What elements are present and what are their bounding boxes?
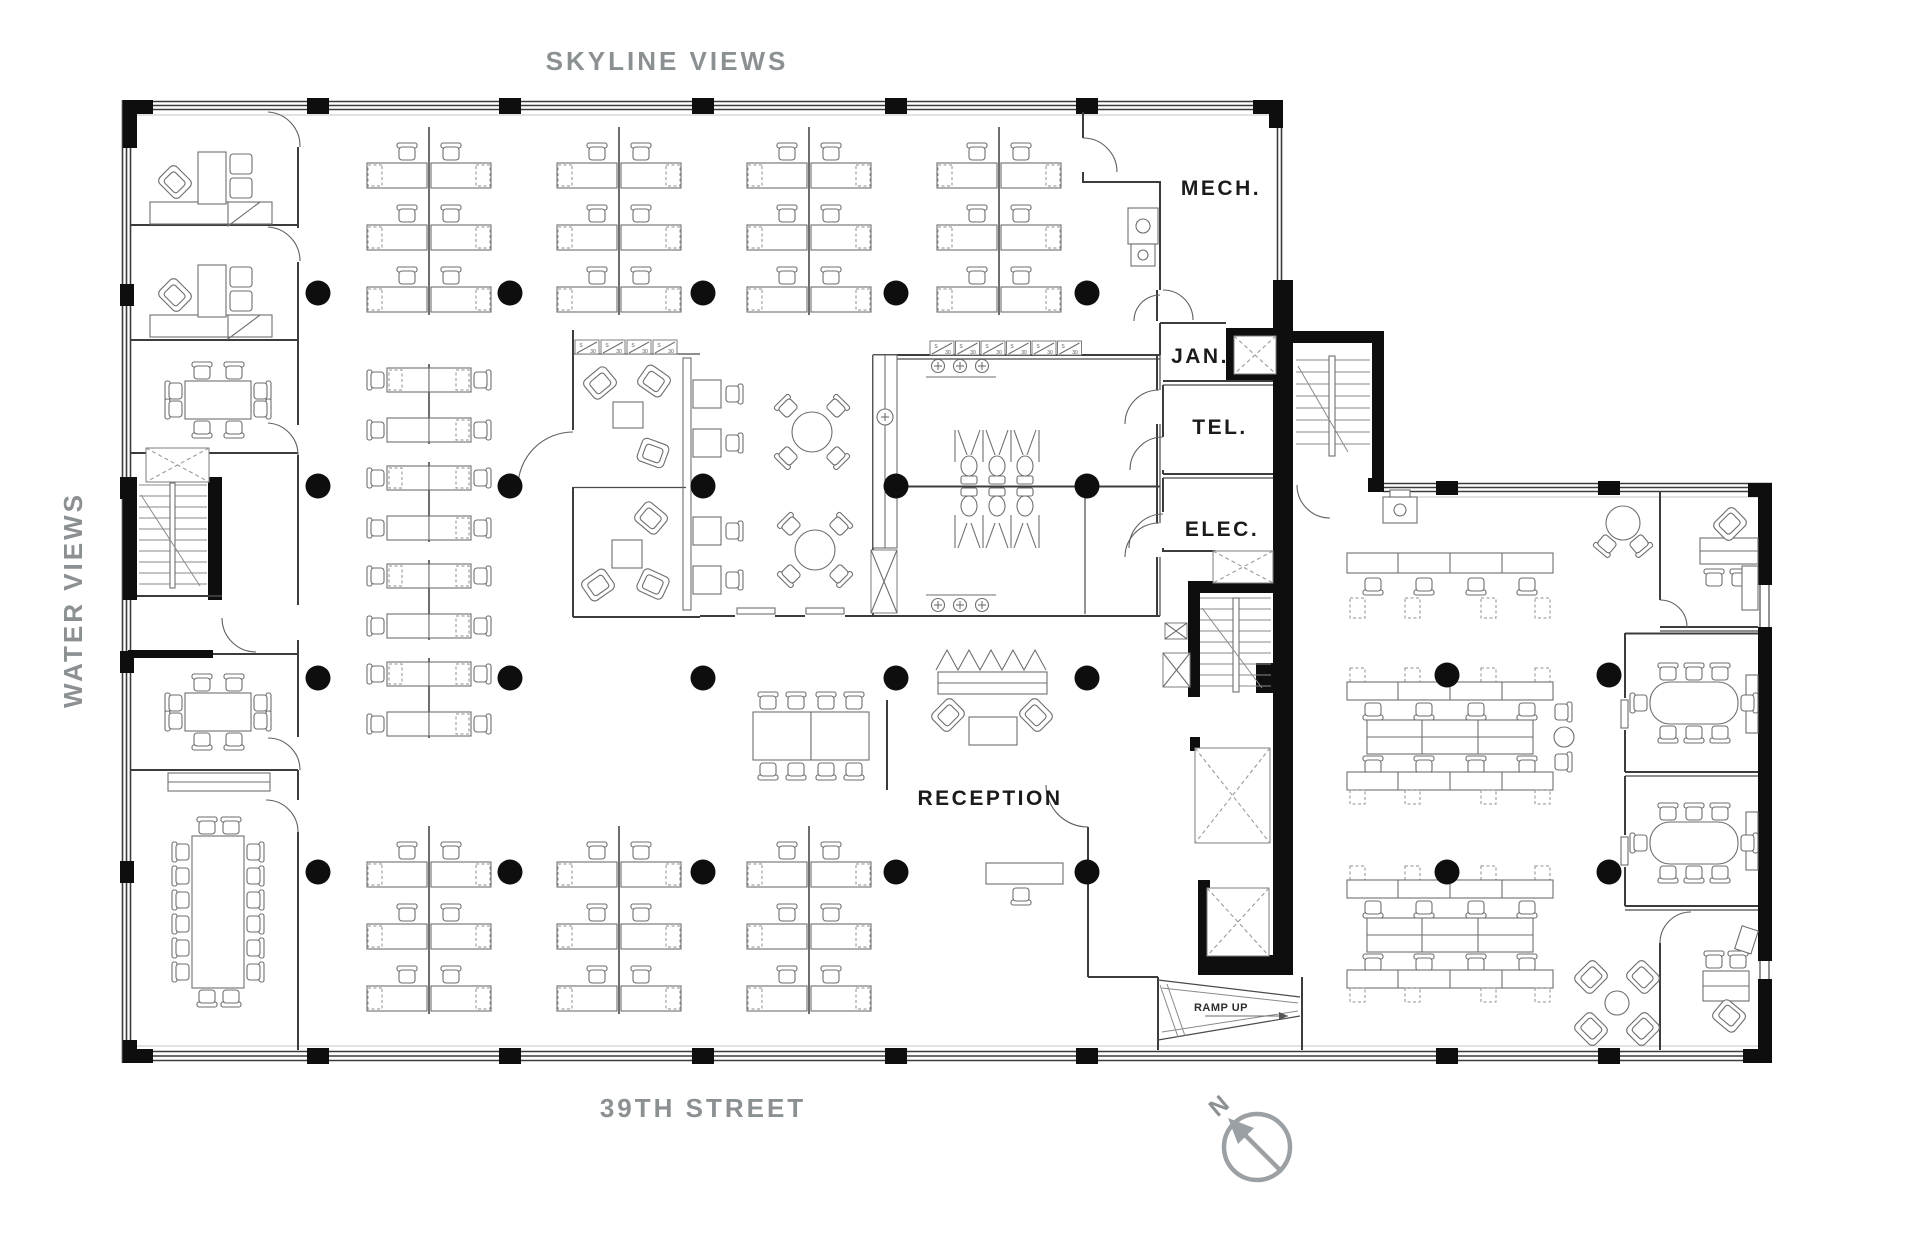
reception-side-desk (986, 863, 1063, 905)
room-label-tel: TEL. (1192, 416, 1248, 439)
furniture-left-wing: S30 S30 S30 S30 S30 S30 S30 S30 S30 S30 (150, 127, 1158, 1014)
desk-cluster (367, 127, 491, 315)
mech-equipment (1128, 208, 1158, 266)
svg-text:30: 30 (1047, 350, 1053, 356)
exec-office-top (1700, 506, 1758, 610)
desk-cluster (747, 127, 871, 315)
svg-text:30: 30 (1072, 350, 1078, 356)
north-compass: N (1204, 1090, 1290, 1180)
meeting-table-8 (165, 674, 271, 750)
desk-cluster (937, 127, 1061, 315)
compass-needle-icon (1245, 1135, 1282, 1172)
svg-text:30: 30 (668, 349, 674, 355)
shaft-small-a (1165, 623, 1187, 639)
reception-desk (936, 650, 1047, 694)
round-table-2 (1593, 506, 1654, 558)
room-label-mech: MECH. (1181, 177, 1261, 200)
ramp-label: RAMP UP (1194, 1002, 1248, 1014)
lounge-seating (580, 363, 673, 603)
bench-cluster (1347, 553, 1553, 618)
room-label-elec: ELEC. (1185, 518, 1259, 541)
compass-north-label: N (1204, 1090, 1235, 1122)
conference-table (1630, 663, 1758, 743)
exec-office-bottom (1703, 926, 1758, 1034)
boardroom-table (172, 817, 264, 1007)
room-label-reception: RECEPTION (917, 787, 1062, 810)
svg-text:30: 30 (1021, 350, 1027, 356)
elevator-left (146, 448, 209, 482)
svg-text:30: 30 (945, 350, 951, 356)
waiting-area (930, 697, 1055, 745)
stair-upper-right (1296, 356, 1370, 456)
pantry-counter (873, 355, 897, 548)
desk-cluster (367, 826, 491, 1014)
printer-station (1383, 490, 1417, 523)
cafe-tables (693, 380, 853, 594)
furniture-right-wing (1347, 490, 1758, 1047)
elevator-core-2 (1207, 888, 1269, 956)
bench-cluster-double (1347, 668, 1574, 804)
elevator-core-1 (1195, 748, 1270, 843)
conference-table (1630, 803, 1758, 883)
private-office-desk (150, 152, 272, 226)
39th-street-label: 39TH STREET (600, 1093, 806, 1123)
room-label-jan: JAN. (1171, 345, 1229, 368)
desk-cluster (557, 826, 681, 1014)
ramp: RAMP UP (1158, 980, 1300, 1040)
desk-cluster (557, 127, 681, 315)
x-table (1573, 959, 1662, 1048)
floor-plan-page: RAMP UP S30 S30 S30 S30 S30 S30 S30 S (0, 0, 1920, 1260)
storage-lockers: S30 S30 S30 S30 S30 S30 S30 S30 S30 S30 (575, 340, 1082, 356)
bench-cluster-double (1347, 866, 1553, 1002)
desk-pod (367, 364, 491, 444)
desk-cluster (747, 826, 871, 1014)
svg-text:30: 30 (590, 349, 596, 355)
open-meeting-tables (753, 692, 869, 780)
desk-pod (367, 560, 491, 640)
floor-plan-canvas: RAMP UP S30 S30 S30 S30 S30 S30 S30 S (0, 0, 1920, 1260)
svg-text:30: 30 (970, 350, 976, 356)
water-views-label: WATER VIEWS (58, 492, 88, 708)
desk-pod (367, 462, 491, 542)
skyline-views-label: SKYLINE VIEWS (546, 46, 789, 76)
desk-pod (367, 658, 491, 738)
svg-text:30: 30 (642, 349, 648, 355)
svg-text:30: 30 (616, 349, 622, 355)
private-office-desk (150, 265, 272, 339)
shaft-elec (1213, 551, 1273, 583)
stair-left (139, 483, 207, 588)
shaft-pantry (871, 550, 897, 613)
shaft-small-b (1163, 653, 1190, 687)
shaft-jan (1234, 336, 1276, 374)
svg-text:30: 30 (996, 350, 1002, 356)
meeting-table-6 (165, 362, 271, 438)
